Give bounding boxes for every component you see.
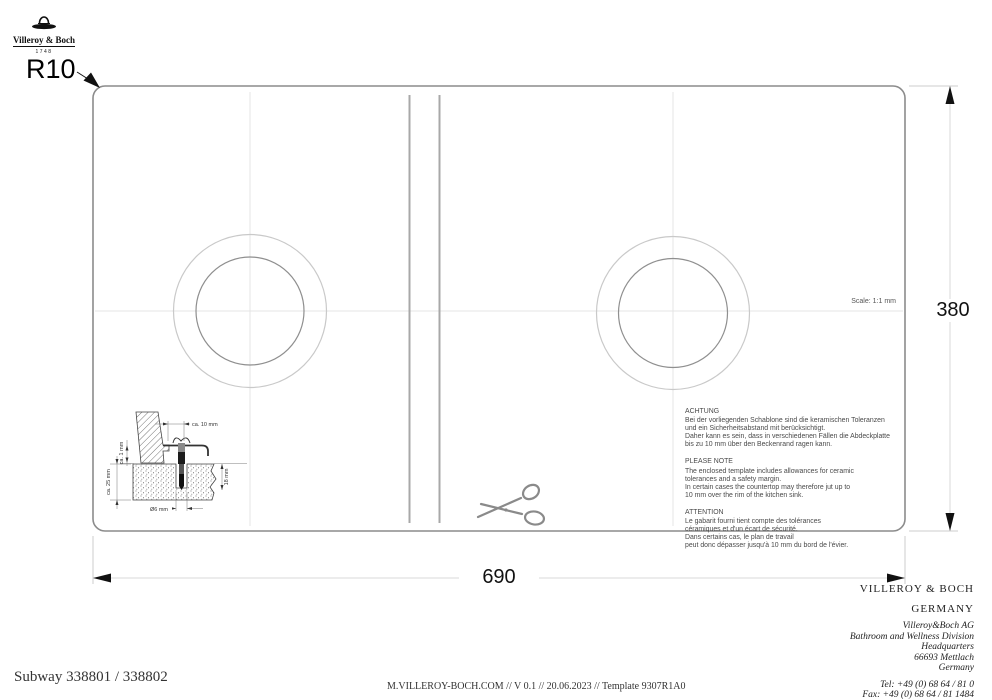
template-sheet: ca. 10 mm ca. 1 mm ca. 25 mm 18 mm Ø6 mm…	[0, 0, 992, 700]
company-address: Villeroy&Boch AG Bathroom and Wellness D…	[850, 621, 974, 674]
detail-dim-gap-label: ca. 1 mm	[119, 441, 125, 464]
height-dimension-label: 380	[921, 299, 985, 322]
detail-dim-top-label: ca. 10 mm	[192, 422, 218, 428]
note-german-heading: ACHTUNG	[685, 408, 907, 416]
note-french-body: Le gabarit fourni tient compte des tolér…	[685, 518, 907, 550]
note-german: ACHTUNG Bei der vorliegenden Schablone s…	[685, 408, 907, 449]
note-french: ATTENTION Le gabarit fourni tient compte…	[685, 509, 907, 550]
note-french-heading: ATTENTION	[685, 509, 907, 517]
note-english-body: The enclosed template includes allowance…	[685, 468, 907, 500]
detail-dim-depth-label: 18 mm	[224, 468, 230, 485]
detail-dim-thickness-label: ca. 25 mm	[106, 469, 112, 495]
company-name: VILLEROY & BOCH	[850, 583, 974, 595]
document-meta: M.VILLEROY-BOCH.COM // V 0.1 // 20.06.20…	[387, 681, 685, 692]
countertop-section	[133, 464, 216, 500]
r10-leader	[77, 72, 100, 88]
company-country: GERMANY	[850, 603, 974, 615]
brand-logo: Villeroy & Boch 1748	[13, 8, 75, 55]
note-german-body: Bei der vorliegenden Schablone sind die …	[685, 417, 907, 449]
company-contact: Tel: +49 (0) 68 64 / 81 0 Fax: +49 (0) 6…	[850, 680, 974, 700]
vb-crest-icon	[16, 8, 72, 30]
brand-name: Villeroy & Boch	[13, 35, 75, 47]
detail-dim-diameter-label: Ø6 mm	[150, 507, 168, 513]
corner-radius-label: R10	[26, 54, 76, 85]
width-dimension-label: 690	[459, 566, 539, 589]
company-address-block: VILLEROY & BOCH GERMANY Villeroy&Boch AG…	[850, 583, 974, 700]
notes-block: ACHTUNG Bei der vorliegenden Schablone s…	[685, 408, 907, 559]
scale-label: Scale: 1:1 mm	[758, 298, 896, 305]
technical-drawing: ca. 10 mm ca. 1 mm ca. 25 mm 18 mm Ø6 mm	[0, 0, 992, 700]
product-reference: Subway 338801 / 338802	[14, 669, 168, 686]
note-english-heading: PLEASE NOTE	[685, 458, 907, 466]
note-english: PLEASE NOTE The enclosed template includ…	[685, 458, 907, 499]
